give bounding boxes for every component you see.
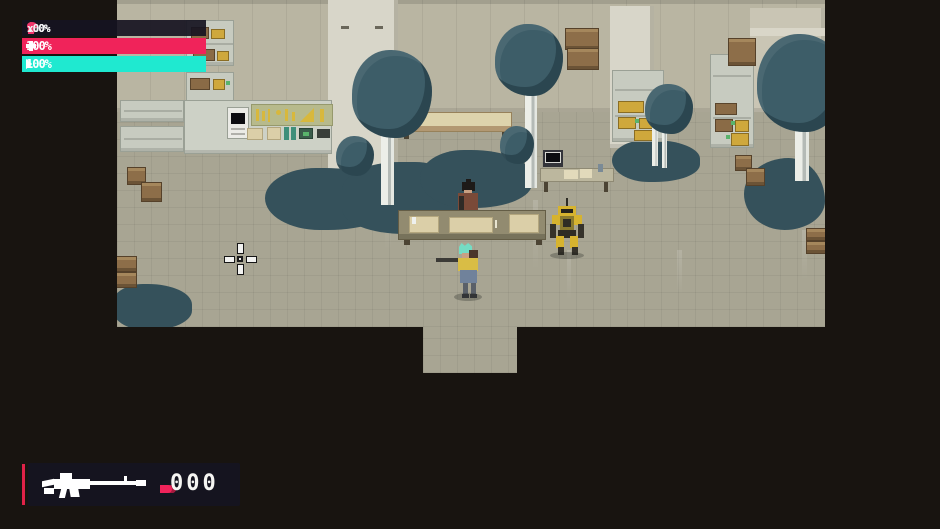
- crate: [746, 168, 765, 186]
- crate: [806, 228, 825, 241]
- crate: [567, 48, 599, 70]
- display-table: [120, 100, 184, 122]
- ammo-count: 000: [170, 471, 219, 496]
- game-viewport[interactable]: 100% 100% 100% x0 100% 100%: [0, 0, 940, 529]
- energy-value: 100%: [26, 57, 51, 71]
- tree-trunk: [652, 126, 658, 166]
- workbench: [184, 100, 332, 154]
- player-character: [436, 242, 488, 304]
- rifle-icon: [42, 463, 172, 506]
- crate: [141, 182, 162, 202]
- shop-interior: [117, 0, 825, 327]
- stats-bar: 100% 100% 100% x0: [22, 20, 206, 36]
- crate: [117, 272, 137, 288]
- monitor: [543, 150, 563, 167]
- yellow-mech: [550, 198, 584, 260]
- crate: [565, 28, 599, 50]
- storage-shelf: [710, 54, 754, 148]
- stat-value: x0: [27, 22, 38, 35]
- tool-board: [251, 104, 333, 126]
- computer-desk: [540, 148, 614, 194]
- display-table: [120, 126, 184, 152]
- terminal-machine: [227, 107, 249, 139]
- weapon-panel: 000: [28, 463, 240, 506]
- doorway-passage: [423, 327, 517, 373]
- tree-trunk: [662, 130, 667, 168]
- tree-canopy: [336, 136, 374, 176]
- tree-canopy: [500, 126, 534, 164]
- bush: [117, 284, 192, 327]
- tree-canopy: [645, 84, 693, 134]
- crate: [117, 256, 137, 272]
- health-bar: 100%: [22, 38, 206, 54]
- health-value: 100%: [26, 39, 51, 53]
- crate: [806, 241, 825, 254]
- shop-counter: [398, 210, 546, 240]
- crate: [728, 38, 756, 66]
- energy-bar: 100%: [22, 56, 206, 72]
- tree-canopy: [495, 24, 563, 96]
- tree-canopy: [352, 50, 432, 138]
- weapon-accent-line: [22, 464, 25, 505]
